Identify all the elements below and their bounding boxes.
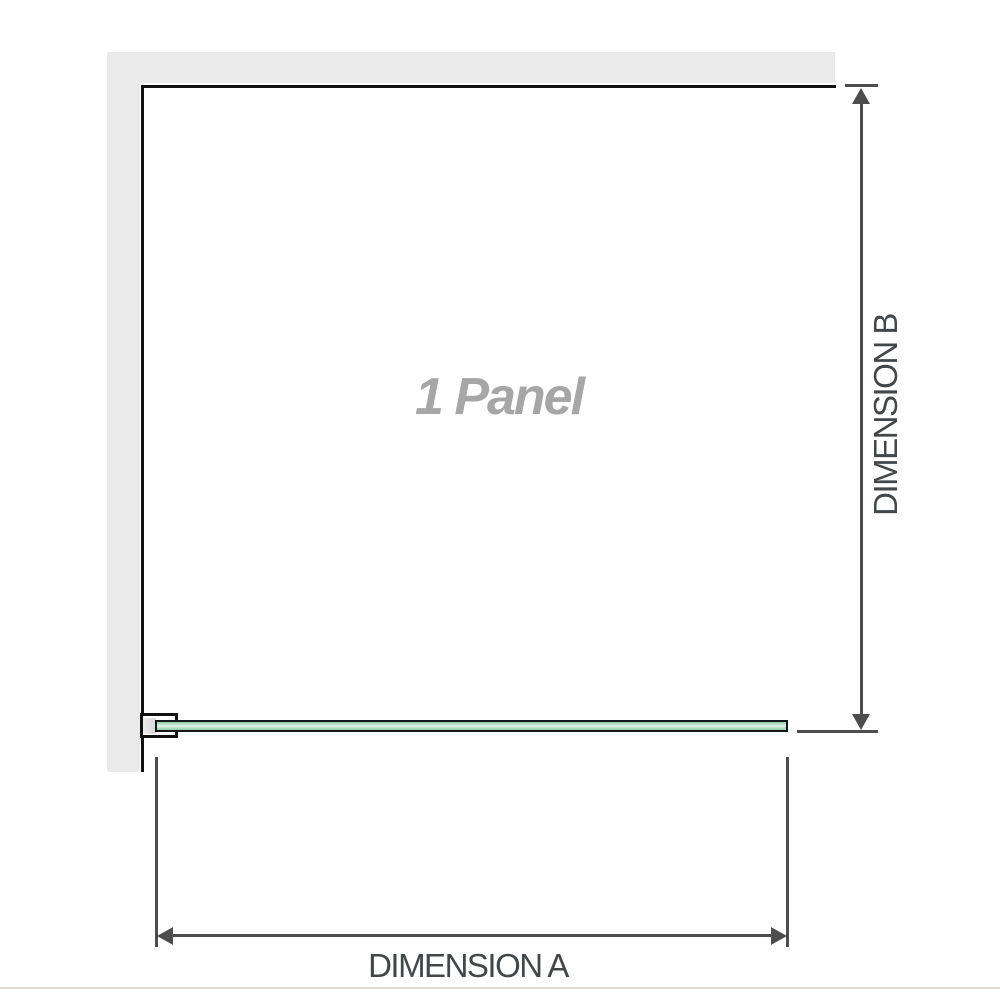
panel-outline-top: [141, 85, 836, 88]
panel-outline-left: [141, 85, 144, 772]
dimension-b-tick-bottom: [797, 730, 878, 733]
page-baseline-divider: [0, 987, 1000, 989]
panel-count-label: 1 Panel: [415, 367, 583, 427]
wall-left-bar: [107, 52, 140, 772]
arrow-left-icon: [157, 927, 173, 945]
panel-dimension-diagram: 1 Panel DIMENSION B DIMENSION A: [0, 0, 1000, 1000]
dimension-a-line: [166, 934, 778, 937]
arrow-up-icon: [852, 88, 870, 104]
dimension-b-label: DIMENSION B: [867, 314, 905, 516]
dimension-a-label: DIMENSION A: [368, 947, 568, 985]
dimension-b-line: [860, 92, 863, 724]
wall-top-bar: [107, 52, 835, 83]
dimension-a-extension-right: [786, 757, 789, 947]
arrow-down-icon: [852, 714, 870, 730]
arrow-right-icon: [771, 927, 787, 945]
dimension-b-tick-top: [845, 84, 878, 87]
glass-panel-plan-view: [155, 720, 788, 732]
dimension-a-extension-left: [155, 757, 158, 947]
